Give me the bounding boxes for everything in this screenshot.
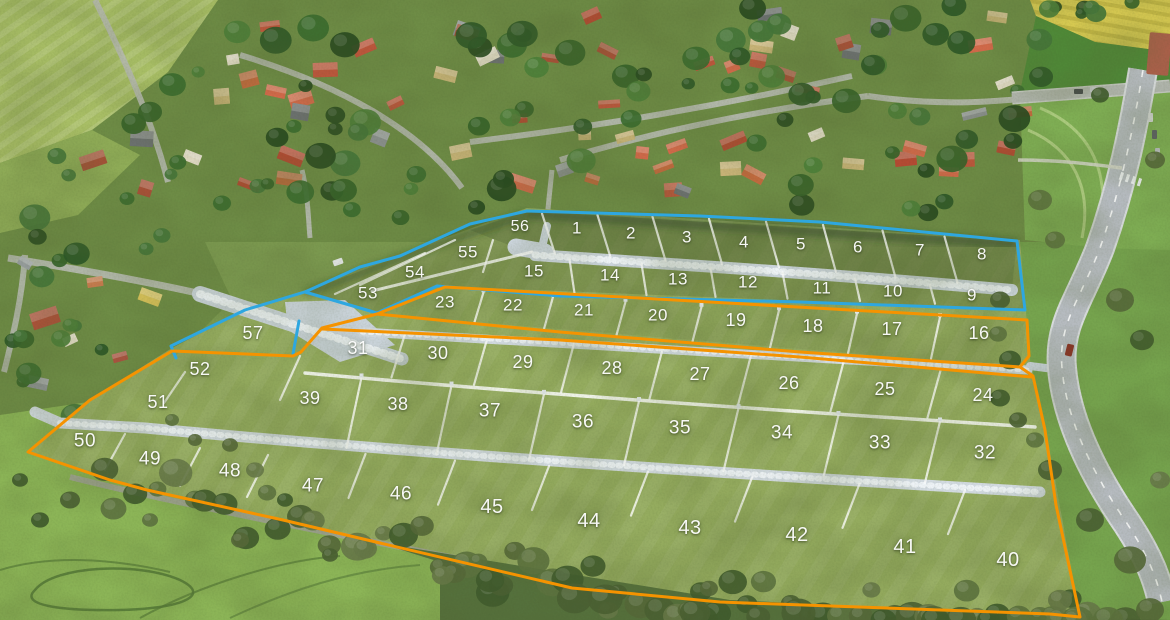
plot-label-32[interactable]: 32 <box>974 444 996 463</box>
plot-label-40[interactable]: 40 <box>996 550 1019 570</box>
plot-label-15[interactable]: 15 <box>524 263 544 280</box>
plot-label-31[interactable]: 31 <box>347 339 368 357</box>
plot-label-4[interactable]: 4 <box>739 234 749 251</box>
plot-label-2[interactable]: 2 <box>626 225 636 242</box>
plot-label-42[interactable]: 42 <box>785 525 808 545</box>
plot-label-7[interactable]: 7 <box>915 242 925 259</box>
plot-label-18[interactable]: 18 <box>802 317 823 335</box>
plot-label-19[interactable]: 19 <box>725 311 746 329</box>
plot-label-8[interactable]: 8 <box>977 246 987 263</box>
plot-label-30[interactable]: 30 <box>427 344 448 362</box>
plot-label-27[interactable]: 27 <box>689 365 710 383</box>
plot-label-21[interactable]: 21 <box>574 302 594 319</box>
plot-label-20[interactable]: 20 <box>648 307 668 324</box>
plot-label-51[interactable]: 51 <box>147 393 168 411</box>
plot-label-6[interactable]: 6 <box>853 239 863 256</box>
plot-label-23[interactable]: 23 <box>435 294 455 311</box>
plot-label-47[interactable]: 47 <box>302 477 324 496</box>
plot-label-44[interactable]: 44 <box>577 511 600 531</box>
plot-label-49[interactable]: 49 <box>139 450 161 469</box>
plot-label-41[interactable]: 41 <box>893 537 916 557</box>
plot-label-22[interactable]: 22 <box>503 297 523 314</box>
plot-label-33[interactable]: 33 <box>869 434 891 453</box>
plot-label-39[interactable]: 39 <box>299 389 320 407</box>
plot-label-14[interactable]: 14 <box>600 267 620 284</box>
plot-label-57[interactable]: 57 <box>242 324 263 342</box>
plot-label-37[interactable]: 37 <box>479 402 501 421</box>
plot-label-17[interactable]: 17 <box>881 320 902 338</box>
plot-label-53[interactable]: 53 <box>358 285 378 302</box>
plot-label-5[interactable]: 5 <box>796 236 806 253</box>
plot-label-34[interactable]: 34 <box>771 424 793 443</box>
plot-label-24[interactable]: 24 <box>972 386 993 404</box>
plot-label-10[interactable]: 10 <box>883 283 903 300</box>
plot-label-25[interactable]: 25 <box>874 380 895 398</box>
plot-label-9[interactable]: 9 <box>967 287 977 304</box>
plot-label-3[interactable]: 3 <box>682 229 692 246</box>
plot-label-11[interactable]: 11 <box>813 280 832 297</box>
plot-label-28[interactable]: 28 <box>601 359 622 377</box>
plot-label-1[interactable]: 1 <box>572 220 582 237</box>
plot-label-56[interactable]: 56 <box>511 219 530 235</box>
plot-label-43[interactable]: 43 <box>678 518 701 538</box>
plot-label-26[interactable]: 26 <box>778 374 799 392</box>
plot-label-48[interactable]: 48 <box>219 462 241 481</box>
plot-label-50[interactable]: 50 <box>74 432 96 451</box>
plot-label-45[interactable]: 45 <box>480 497 503 517</box>
plot-label-46[interactable]: 46 <box>390 485 412 504</box>
plot-label-54[interactable]: 54 <box>405 264 425 281</box>
aerial-plot-map: 1234567891011121314151617181920212223242… <box>0 0 1170 620</box>
plot-label-13[interactable]: 13 <box>668 271 688 288</box>
plot-label-36[interactable]: 36 <box>572 413 594 432</box>
plot-label-12[interactable]: 12 <box>738 274 758 291</box>
plot-label-55[interactable]: 55 <box>458 244 478 261</box>
plot-label-38[interactable]: 38 <box>387 395 408 413</box>
plot-label-52[interactable]: 52 <box>189 360 210 378</box>
plot-label-16[interactable]: 16 <box>968 324 989 342</box>
plot-label-35[interactable]: 35 <box>669 419 691 438</box>
plot-label-29[interactable]: 29 <box>512 353 533 371</box>
